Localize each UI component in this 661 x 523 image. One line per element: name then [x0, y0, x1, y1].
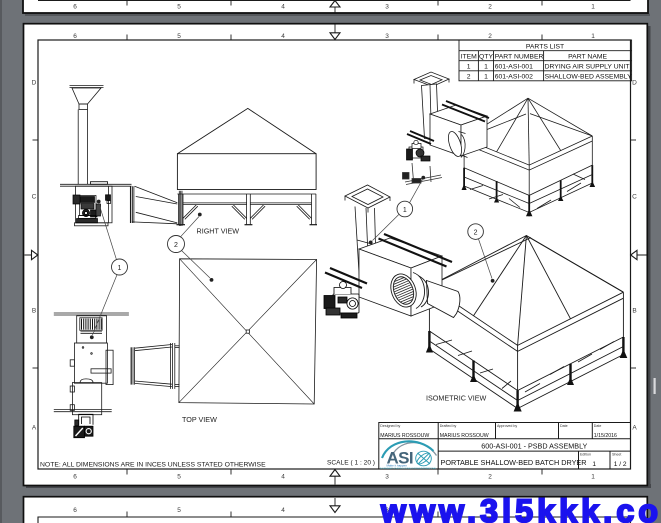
- svg-text:1: 1: [118, 265, 122, 272]
- svg-text:Date: Date: [560, 424, 568, 428]
- svg-text:1: 1: [591, 4, 595, 11]
- svg-text:ITEM: ITEM: [461, 53, 478, 60]
- svg-text:MARIUS ROSSOUW: MARIUS ROSSOUW: [380, 433, 429, 439]
- svg-text:5: 5: [177, 474, 181, 481]
- svg-text:3: 3: [385, 474, 389, 481]
- svg-text:2: 2: [467, 74, 471, 81]
- svg-text:A: A: [632, 425, 637, 432]
- svg-text:TOP VIEW: TOP VIEW: [182, 415, 217, 424]
- svg-text:1/15/2016: 1/15/2016: [594, 433, 617, 439]
- svg-text:DRYING AIR SUPPLY UNIT: DRYING AIR SUPPLY UNIT: [545, 63, 630, 70]
- svg-text:Sheet: Sheet: [612, 453, 621, 457]
- svg-text:C: C: [632, 194, 637, 201]
- svg-text:NOTE: ALL DIMENSIONS ARE IN IN: NOTE: ALL DIMENSIONS ARE IN INCES UNLESS…: [40, 462, 266, 469]
- svg-text:2: 2: [488, 33, 492, 40]
- svg-text:3: 3: [385, 33, 389, 40]
- svg-text:D: D: [632, 80, 637, 87]
- svg-text:PART NAME: PART NAME: [568, 53, 607, 60]
- svg-text:6: 6: [73, 474, 77, 481]
- svg-text:6: 6: [73, 4, 77, 11]
- svg-text:4: 4: [281, 4, 285, 11]
- svg-text:B: B: [32, 308, 36, 315]
- svg-text:5: 5: [177, 4, 181, 11]
- svg-text:1: 1: [591, 33, 595, 40]
- svg-text:1: 1: [591, 474, 595, 481]
- svg-text:PART NUMBER: PART NUMBER: [495, 53, 544, 60]
- svg-text:Designed by: Designed by: [380, 424, 400, 428]
- svg-text:601-ASI-001: 601-ASI-001: [495, 63, 533, 70]
- svg-text:ISOMETRIC VIEW: ISOMETRIC VIEW: [426, 394, 487, 403]
- svg-text:Approved by: Approved by: [497, 424, 517, 428]
- svg-text:SCALE ( 1 : 20 ): SCALE ( 1 : 20 ): [327, 460, 375, 467]
- svg-text:SHALLOW-BED ASSEMBLY: SHALLOW-BED ASSEMBLY: [545, 74, 632, 81]
- svg-text:600-ASI-001 - PSBD ASSEMBLY: 600-ASI-001 - PSBD ASSEMBLY: [481, 442, 587, 451]
- svg-text:6: 6: [73, 33, 77, 40]
- svg-text:C: C: [32, 194, 37, 201]
- svg-text:3: 3: [385, 4, 389, 11]
- svg-text:RIGHT VIEW: RIGHT VIEW: [197, 227, 240, 236]
- svg-text:Edition: Edition: [580, 453, 591, 457]
- svg-text:PARTS LIST: PARTS LIST: [526, 43, 564, 50]
- svg-text:MARIUS ROSSOUW: MARIUS ROSSOUW: [440, 433, 489, 439]
- svg-text:5: 5: [177, 507, 181, 514]
- svg-text:5: 5: [177, 33, 181, 40]
- svg-text:PORTABLE SHALLOW-BED BATCH DRY: PORTABLE SHALLOW-BED BATCH DRYER: [441, 458, 587, 467]
- svg-text:Date: Date: [594, 424, 602, 428]
- svg-text:D: D: [32, 80, 37, 87]
- svg-text:QTY: QTY: [479, 53, 493, 60]
- svg-text:1 / 2: 1 / 2: [614, 461, 627, 468]
- svg-text:1: 1: [403, 207, 407, 214]
- svg-text:1: 1: [484, 63, 488, 70]
- svg-text:A SUBSIDIARY OF AGRICULTURAL S: A SUBSIDIARY OF AGRICULTURAL SYSTEMS INT…: [380, 467, 437, 470]
- svg-text:601-ASI-002: 601-ASI-002: [495, 74, 533, 81]
- svg-text:1: 1: [467, 63, 471, 70]
- svg-text:1: 1: [484, 74, 488, 81]
- svg-text:2: 2: [174, 242, 178, 249]
- svg-text:2: 2: [488, 4, 492, 11]
- svg-text:2: 2: [474, 230, 478, 237]
- svg-text:4: 4: [281, 33, 285, 40]
- svg-text:4: 4: [281, 507, 285, 514]
- svg-text:2: 2: [488, 474, 492, 481]
- svg-text:4: 4: [281, 474, 285, 481]
- svg-text:1: 1: [592, 461, 596, 468]
- svg-text:Drafted by: Drafted by: [440, 424, 457, 428]
- svg-text:6: 6: [73, 507, 77, 514]
- svg-text:A: A: [32, 425, 37, 432]
- svg-text:B: B: [632, 308, 636, 315]
- svg-text:www.3l5kkk.com: www.3l5kkk.com: [380, 493, 661, 523]
